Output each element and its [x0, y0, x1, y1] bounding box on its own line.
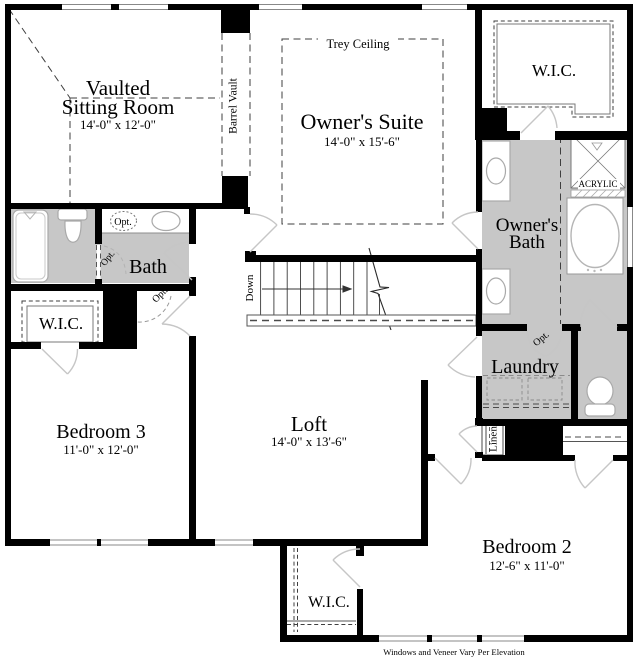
svg-text:Trey Ceiling: Trey Ceiling: [326, 37, 390, 51]
svg-text:Laundry: Laundry: [491, 356, 559, 378]
svg-text:W.I.C.: W.I.C.: [308, 594, 350, 611]
svg-text:Windows and Veneer Vary Per El: Windows and Veneer Vary Per Elevation: [383, 647, 525, 657]
svg-text:Barrel Vault: Barrel Vault: [228, 77, 240, 133]
svg-text:11'-0" x 12'-0": 11'-0" x 12'-0": [63, 442, 138, 457]
svg-text:14'-0" x 12'-0": 14'-0" x 12'-0": [80, 117, 156, 132]
svg-text:ACRYLIC: ACRYLIC: [578, 179, 617, 189]
svg-text:12'-6" x 11'-0": 12'-6" x 11'-0": [489, 558, 564, 573]
svg-text:Opt.: Opt.: [114, 217, 132, 228]
svg-text:14'-0" x 15'-6": 14'-0" x 15'-6": [324, 134, 400, 149]
svg-text:Owner's Suite: Owner's Suite: [300, 109, 423, 134]
svg-text:Bedroom 2: Bedroom 2: [482, 536, 571, 558]
svg-text:Linen: Linen: [488, 426, 500, 452]
svg-text:Down: Down: [244, 274, 256, 301]
svg-text:Bath: Bath: [129, 256, 167, 278]
svg-text:W.I.C.: W.I.C.: [532, 61, 576, 80]
svg-text:Sitting Room: Sitting Room: [62, 95, 175, 119]
svg-text:Loft: Loft: [291, 412, 327, 436]
svg-text:W.I.C.: W.I.C.: [39, 314, 83, 333]
svg-text:14'-0" x 13'-6": 14'-0" x 13'-6": [271, 434, 347, 449]
svg-text:Bath: Bath: [509, 232, 545, 253]
svg-text:Bedroom 3: Bedroom 3: [56, 421, 145, 443]
